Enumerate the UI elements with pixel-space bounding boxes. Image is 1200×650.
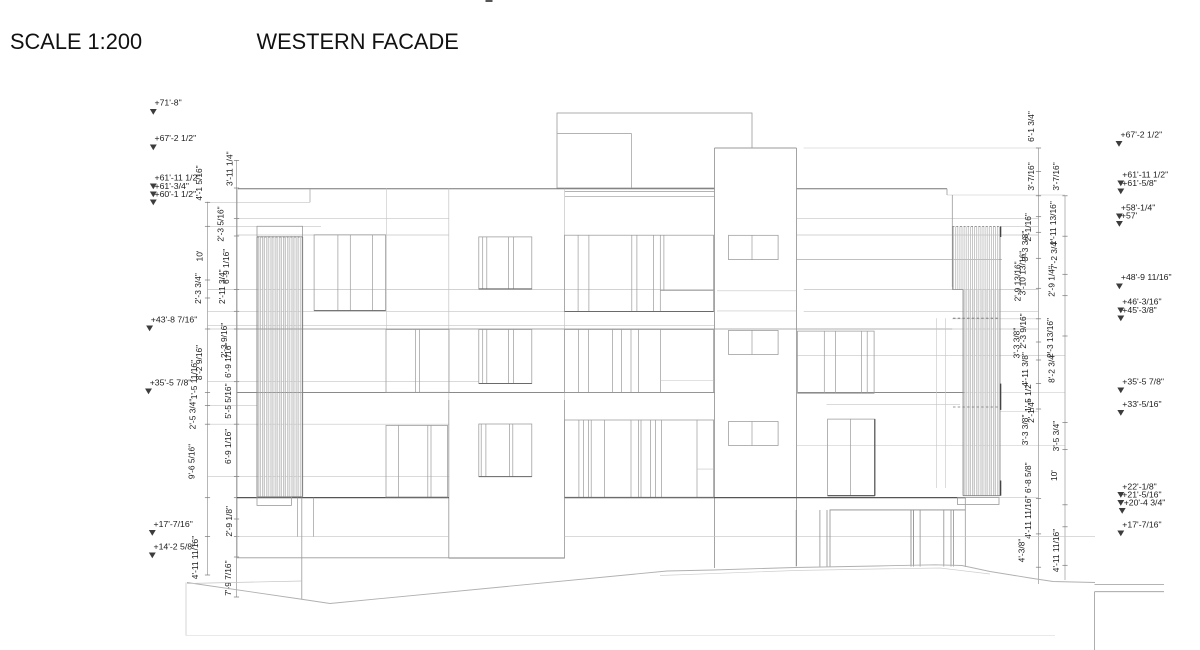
svg-text:6'-8 5/8": 6'-8 5/8" — [1023, 462, 1033, 493]
svg-text:4'-11 11/16": 4'-11 11/16" — [1051, 529, 1061, 572]
svg-text:+33'-5/16": +33'-5/16" — [1122, 399, 1161, 409]
svg-text:7'-2 3/4": 7'-2 3/4" — [1049, 239, 1059, 270]
svg-text:+67'-2 1/2": +67'-2 1/2" — [155, 133, 197, 143]
svg-text:4'-11 11/16": 4'-11 11/16" — [1023, 495, 1033, 538]
svg-text:+17'-7/16": +17'-7/16" — [1122, 520, 1161, 530]
svg-text:10': 10' — [195, 250, 205, 261]
svg-text:3'-11 1/4": 3'-11 1/4" — [225, 151, 235, 186]
svg-text:4'-3/8": 4'-3/8" — [1017, 539, 1027, 563]
svg-text:3'-5 3/4": 3'-5 3/4" — [1051, 421, 1061, 452]
svg-text:+17'-7/16": +17'-7/16" — [154, 519, 193, 529]
svg-text:4'-11 11/16": 4'-11 11/16" — [190, 536, 200, 579]
svg-text:+71'-8": +71'-8" — [155, 98, 182, 108]
svg-text:+60'-1 1/2": +60'-1 1/2" — [155, 189, 197, 199]
svg-text:9'-6 5/16": 9'-6 5/16" — [187, 444, 197, 479]
svg-text:5'-5 5/16": 5'-5 5/16" — [223, 383, 233, 418]
svg-text:2'-9 13/16": 2'-9 13/16" — [1013, 261, 1023, 301]
svg-text:3'-7/16": 3'-7/16" — [1026, 162, 1036, 190]
svg-text:1'-11 13/16": 1'-11 13/16" — [1048, 201, 1058, 245]
svg-text:3'-3 3/8": 3'-3 3/8" — [1020, 415, 1030, 446]
svg-text:7'-9 7/16": 7'-9 7/16" — [223, 560, 233, 595]
svg-text:8'-2 3/4": 8'-2 3/4" — [1047, 352, 1057, 383]
svg-text:+35'-5 7/8": +35'-5 7/8" — [1122, 377, 1164, 387]
svg-text:2'-5 3/4": 2'-5 3/4" — [187, 399, 197, 430]
svg-text:10': 10' — [1049, 470, 1059, 481]
svg-text:WESTERN FACADE: WESTERN FACADE — [257, 29, 459, 54]
svg-text:+57': +57' — [1121, 211, 1138, 221]
svg-text:3'-7/16": 3'-7/16" — [1051, 162, 1061, 190]
svg-text:1'-5 11/16": 1'-5 11/16" — [189, 360, 199, 399]
svg-text:+61'-5/8": +61'-5/8" — [1122, 178, 1156, 188]
svg-text:2'-3 3/4": 2'-3 3/4" — [193, 273, 203, 304]
svg-text:2'-3 5/16": 2'-3 5/16" — [215, 206, 225, 241]
svg-text:+14'-2 5/8": +14'-2 5/8" — [154, 542, 196, 552]
svg-text:2'-11 3/4": 2'-11 3/4" — [217, 269, 227, 304]
svg-text:+35'-5 7/8": +35'-5 7/8" — [150, 378, 192, 388]
svg-text:2'-9 1/8": 2'-9 1/8" — [224, 506, 234, 537]
svg-text:+20'-4 3/4": +20'-4 3/4" — [1124, 498, 1166, 508]
svg-text:4'-1 5/16": 4'-1 5/16" — [194, 165, 204, 200]
svg-text:SCALE 1:200: SCALE 1:200 — [10, 29, 142, 54]
svg-text:6'-9 1/16": 6'-9 1/16" — [223, 429, 233, 464]
svg-text:2'-3 13/16": 2'-3 13/16" — [1045, 318, 1055, 358]
svg-text:+48'-9 11/16": +48'-9 11/16" — [1121, 272, 1172, 282]
svg-text:+67'-2 1/2": +67'-2 1/2" — [1121, 130, 1163, 140]
svg-text:6'-1 3/4": 6'-1 3/4" — [1026, 111, 1036, 142]
svg-text:+45'-3/8": +45'-3/8" — [1122, 305, 1156, 315]
svg-text:6'-9 1/16": 6'-9 1/16" — [223, 343, 233, 378]
svg-text:+43'-8 7/16": +43'-8 7/16" — [151, 315, 198, 325]
svg-text:2'-9 1/4": 2'-9 1/4" — [1047, 266, 1057, 297]
